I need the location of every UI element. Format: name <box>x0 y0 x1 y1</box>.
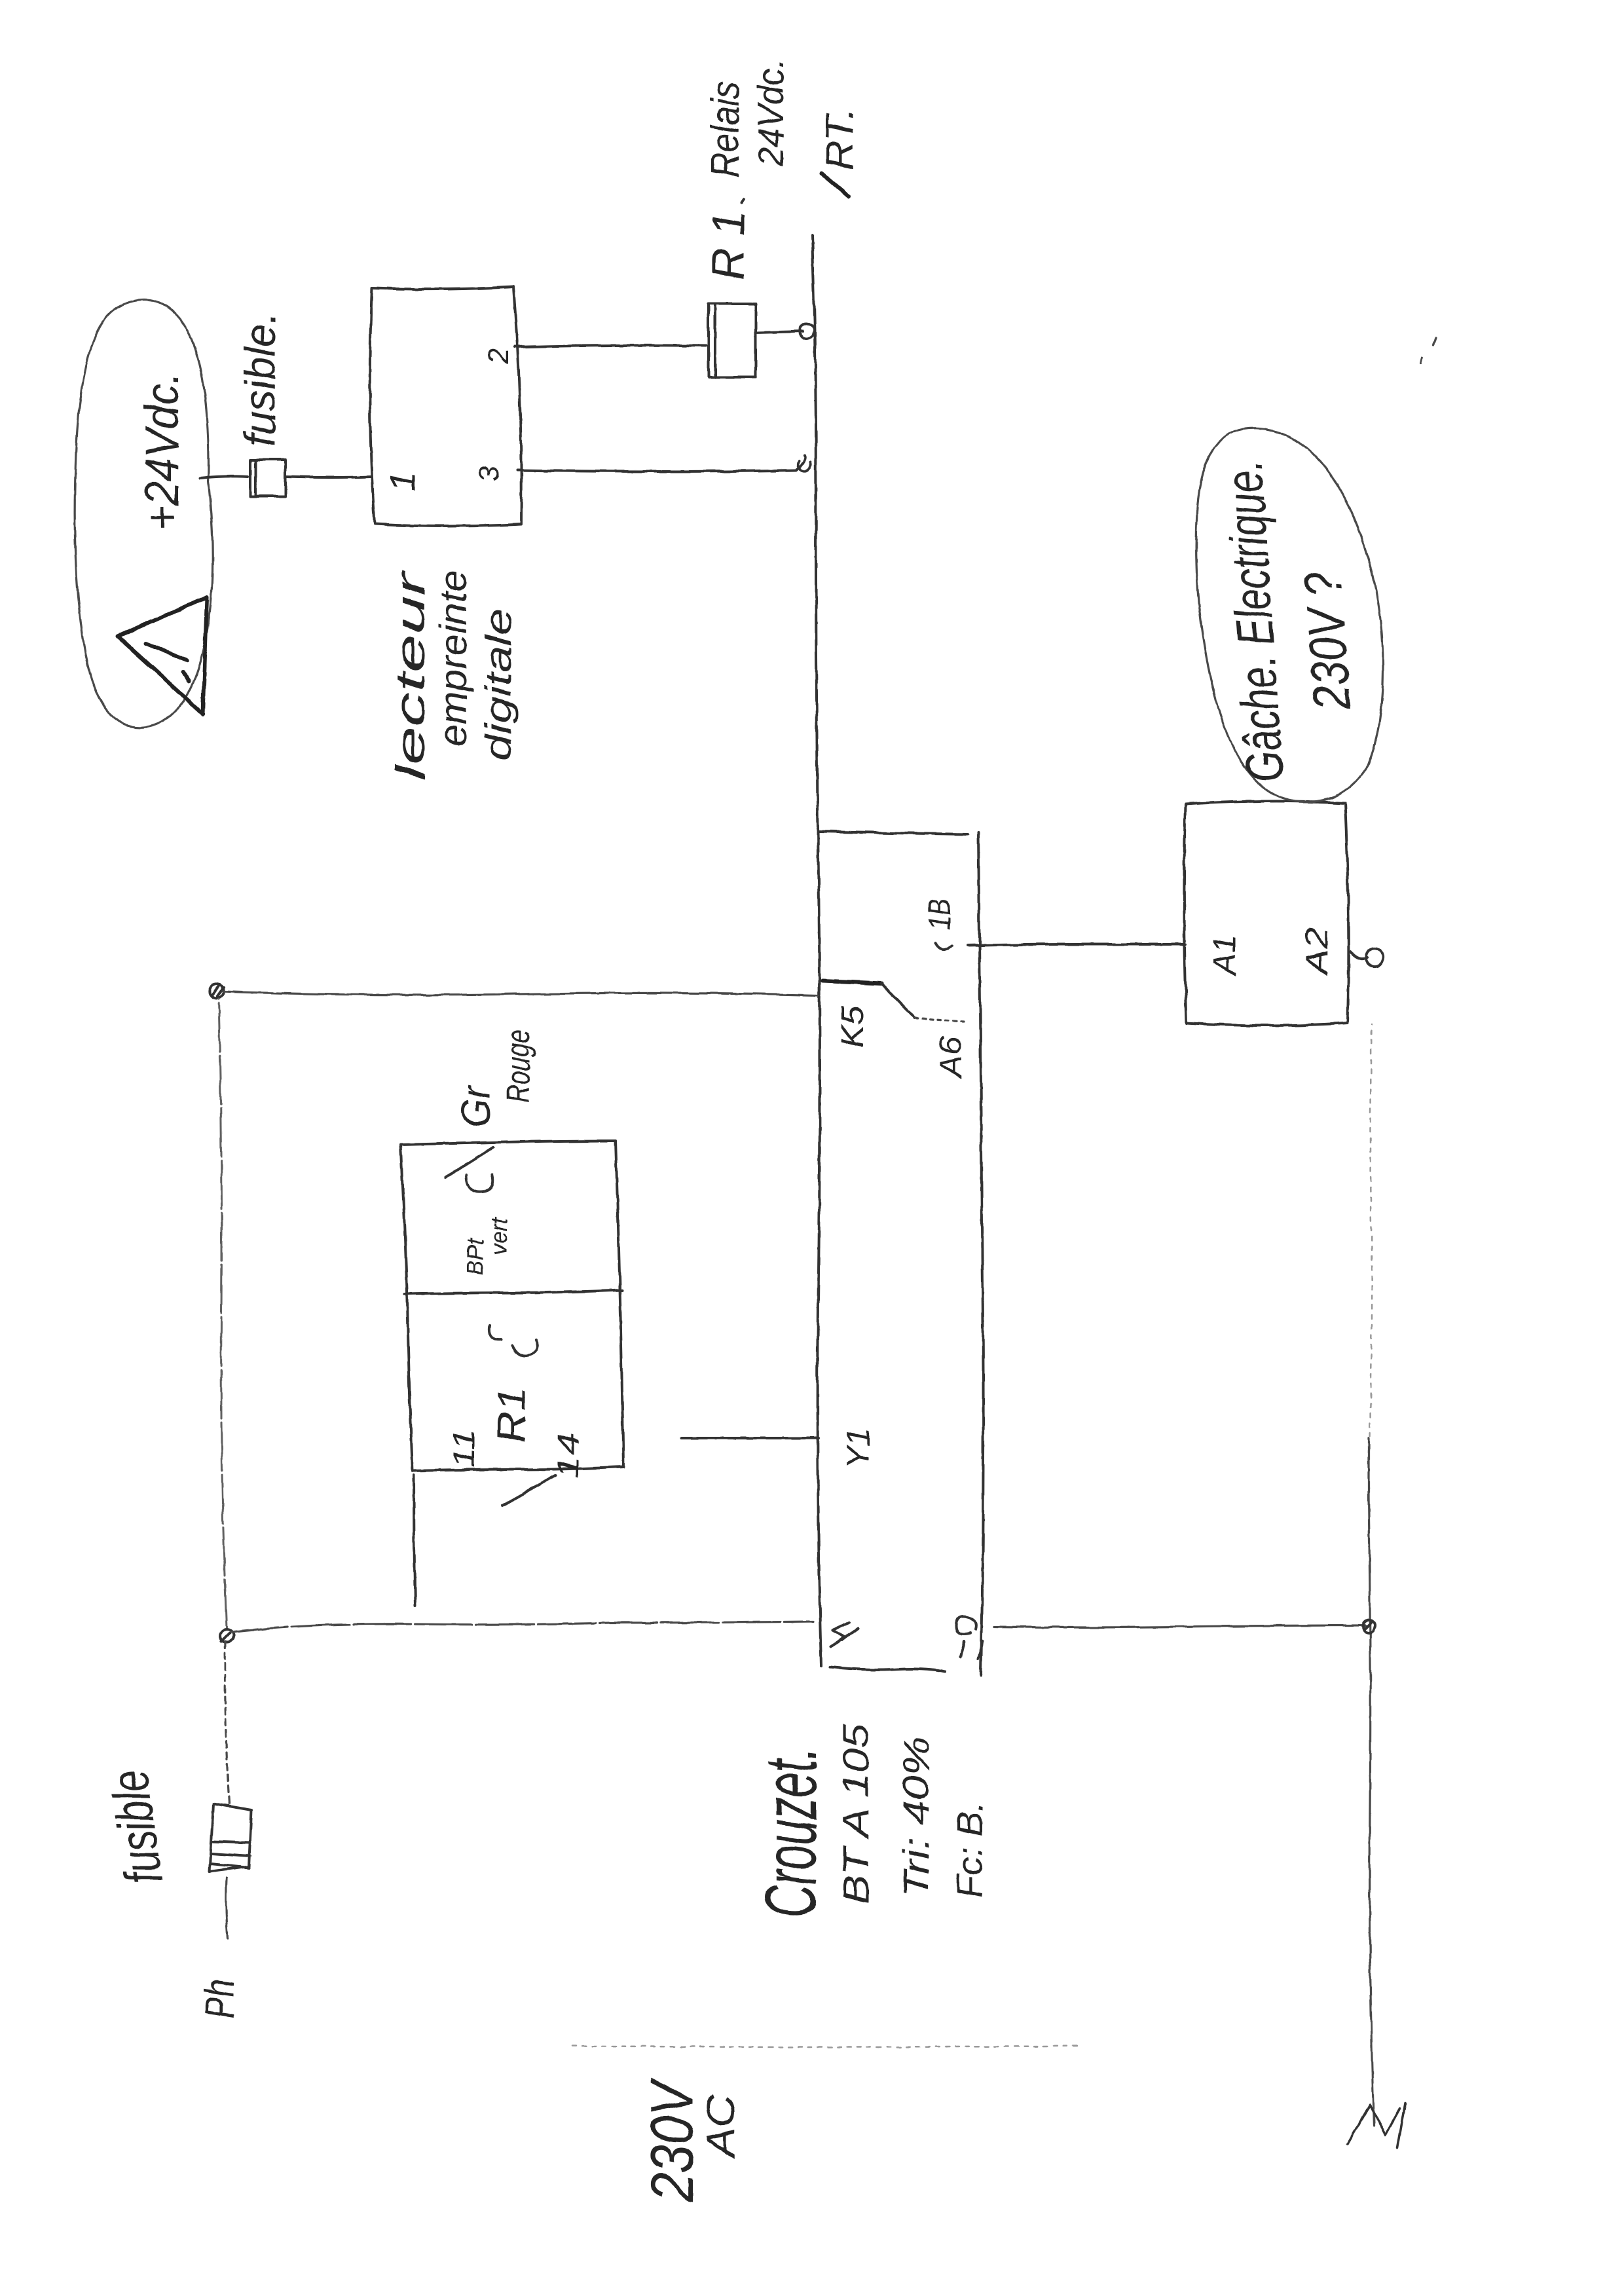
svg-text:empreinte: empreinte <box>432 570 475 747</box>
svg-text:vert: vert <box>485 1217 512 1255</box>
svg-text:Y1: Y1 <box>841 1428 876 1468</box>
svg-text:R 1: R 1 <box>703 211 754 280</box>
svg-text:1B: 1B <box>923 898 957 930</box>
svg-text:fusible.: fusible. <box>236 312 284 447</box>
svg-text:Tri: 40%: Tri: 40% <box>895 1736 936 1898</box>
svg-text:11: 11 <box>447 1429 481 1468</box>
svg-text:3: 3 <box>473 466 506 482</box>
svg-text:A6: A6 <box>934 1036 969 1081</box>
svg-text:Crouzet.: Crouzet. <box>750 1747 832 1917</box>
svg-text:24Vdc.: 24Vdc. <box>750 59 791 167</box>
svg-text:Fc: B.: Fc: B. <box>949 1802 990 1898</box>
svg-text:Ph: Ph <box>197 1979 242 2018</box>
svg-text:+24Vdc.: +24Vdc. <box>136 372 189 530</box>
svg-text:14: 14 <box>551 1433 585 1479</box>
svg-text:A1: A1 <box>1208 935 1242 976</box>
svg-text:lecteur: lecteur <box>388 570 434 781</box>
svg-text:R1: R1 <box>490 1387 534 1443</box>
svg-text:Gâche. Electrique.: Gâche. Electrique. <box>1214 458 1295 784</box>
svg-text:RT.: RT. <box>819 108 861 170</box>
svg-text:AC: AC <box>699 2094 743 2159</box>
svg-text:K5: K5 <box>836 1006 870 1048</box>
svg-text:digitale: digitale <box>477 608 519 761</box>
svg-text:Rouge: Rouge <box>500 1029 536 1103</box>
svg-text:230V: 230V <box>639 2078 706 2202</box>
svg-text:fusible: fusible <box>100 1766 173 1887</box>
svg-text:A2: A2 <box>1300 927 1335 977</box>
svg-text:Gr: Gr <box>454 1084 499 1128</box>
svg-text:BT A 105: BT A 105 <box>835 1723 876 1904</box>
svg-text:BPt: BPt <box>462 1238 489 1276</box>
svg-text:Relais: Relais <box>703 81 747 177</box>
svg-text:1: 1 <box>383 472 422 491</box>
svg-text:2: 2 <box>483 348 515 365</box>
svg-text:230V ?: 230V ? <box>1293 570 1361 713</box>
